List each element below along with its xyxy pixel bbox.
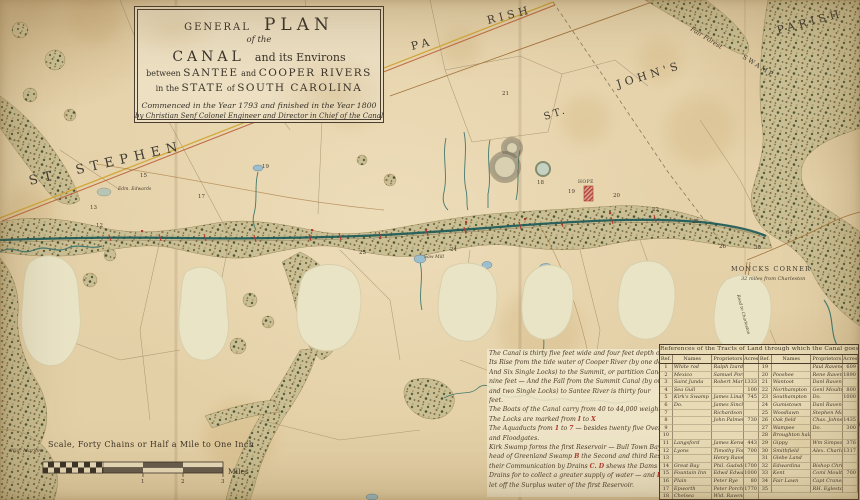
table-cell: 376	[843, 440, 858, 448]
col-ref: Ref.	[759, 355, 772, 363]
table-cell: 1435	[843, 417, 858, 425]
notes-line: The Locks are marked from I to X	[489, 415, 660, 424]
table-cell	[772, 486, 812, 494]
col-acres: Acres	[843, 355, 858, 363]
table-cell: 17	[660, 486, 673, 494]
table-cell: Henry Ravenel	[712, 455, 744, 463]
notes-text: to	[559, 425, 569, 432]
table-cell: 18	[660, 493, 673, 500]
table-cell: Pooshee	[772, 372, 812, 380]
table-cell: Richardson	[712, 410, 744, 418]
reference-table-right: 19Paul Ravenel60920PoosheeRene Ravenel18…	[759, 364, 858, 500]
notes-line: their Communication by Drains C. D shews…	[489, 462, 660, 471]
col-acres: Acres	[744, 355, 759, 363]
repair-patch	[522, 265, 574, 339]
tract-number: 24	[450, 247, 457, 253]
title-cartouche: GENERAL PLAN of the CANAL and its Enviro…	[134, 6, 384, 123]
table-cell: Rene Ravenel	[811, 372, 843, 380]
table-cell	[744, 402, 759, 410]
table-cell	[744, 364, 759, 372]
table-cell: 16	[660, 478, 673, 486]
table-cell: 1000	[843, 394, 858, 402]
table-cell: 1000	[744, 470, 759, 478]
scale-bar: Scale, Forty Chains or Half a Mile to On…	[43, 440, 254, 485]
swamp-bottom-blob	[404, 379, 454, 420]
tract-number: 30	[754, 245, 761, 251]
table-cell: 34	[759, 478, 772, 486]
table-cell: Robert Marion	[712, 379, 744, 387]
table-cell: Northampton	[772, 387, 812, 395]
tract-number: 34	[786, 230, 793, 236]
scale-caption: Scale, Forty Chains or Half a Mile to On…	[48, 440, 254, 449]
notes-text: Kirk Swamp forms the first Reservoir — B…	[489, 444, 660, 451]
notes-text: nine feet — And the Fall from the Summit…	[489, 378, 660, 385]
table-cell: 800	[843, 387, 858, 395]
stream	[443, 138, 448, 210]
notes-text: let off the Surplus water of the first R…	[489, 482, 634, 489]
label-saw-mill: Saw Mill	[424, 254, 445, 260]
table-cell: Fair Lawn	[772, 478, 812, 486]
table-cell: 8	[660, 417, 673, 425]
table-cell: Saint Junda	[673, 379, 713, 387]
table-cell: 19	[759, 364, 772, 372]
notes-text: head of Greenland Swamp	[489, 453, 574, 460]
col-names: Names	[673, 355, 713, 363]
table-cell: Oak field	[772, 417, 812, 425]
tract-number: 15	[140, 173, 147, 179]
table-cell: White rod	[673, 364, 713, 372]
table-cell: 5	[660, 394, 673, 402]
notes-line: Its Rise from the tide water of Cooper R…	[489, 358, 660, 367]
table-cell: 21	[759, 379, 772, 387]
table-cell	[811, 432, 843, 440]
table-cell: Fountain Inn	[673, 470, 713, 478]
notes-red-reference: C. D	[590, 463, 605, 470]
table-cell: 6	[660, 402, 673, 410]
table-cell: Samuel Porcher	[712, 372, 744, 380]
label-wid-marion: Wid. Marion	[10, 448, 41, 454]
table-cell: 1890	[843, 372, 858, 380]
tract-number: 19	[262, 164, 269, 170]
notes-text: their Communication by Drains	[489, 463, 590, 470]
table-cell: Glebe Land	[772, 455, 812, 463]
hope-building	[584, 186, 593, 201]
table-cell: 1700	[744, 463, 759, 471]
table-cell: Plain	[673, 478, 713, 486]
table-cell: Woodlawn	[772, 410, 812, 418]
table-cell	[744, 410, 759, 418]
repair-patch	[297, 265, 361, 351]
label-miles-from-charleston: 32 miles from Charleston	[741, 276, 805, 282]
reference-table-left: 1White rodRalph Izard Esq2MexicoSamuel P…	[660, 364, 759, 500]
table-cell: 443	[744, 440, 759, 448]
col-proprietors: Proprietors	[811, 355, 843, 363]
tract-number: 20	[613, 193, 620, 199]
canal-notes: The Canal is thirty five feet wide and f…	[487, 349, 660, 497]
table-cell: Wantoot	[772, 379, 812, 387]
table-cell: 29	[759, 440, 772, 448]
notes-text: The Canal is thirty five feet wide and f…	[489, 350, 660, 357]
table-cell: John Palmer	[712, 417, 744, 425]
lake-gray	[97, 188, 111, 196]
table-cell: 31	[759, 455, 772, 463]
notes-text: The Locks are marked from	[489, 416, 578, 423]
reference-table-body: 1White rodRalph Izard Esq2MexicoSamuel P…	[660, 364, 858, 500]
notes-text: and two Single Locks) to Santee River is…	[489, 388, 650, 395]
table-cell: Stephen Mazyck	[811, 410, 843, 418]
table-cell: 24	[759, 402, 772, 410]
table-cell: 13	[660, 455, 673, 463]
table-cell: Lyons	[673, 448, 713, 456]
tract-number: 26	[719, 244, 726, 250]
repair-patch	[618, 261, 675, 339]
col-ref: Ref.	[660, 355, 673, 363]
notes-line: and Floodgates.	[489, 434, 660, 443]
table-cell: RH. Egleston	[811, 486, 843, 494]
table-cell: 80	[744, 478, 759, 486]
tract-number: 22	[652, 207, 659, 213]
table-cell: Broughton hall	[772, 432, 812, 440]
table-cell: Timothy Ford	[712, 448, 744, 456]
repair-patch	[21, 256, 80, 366]
table-cell	[843, 410, 858, 418]
table-cell: Smithfield	[772, 448, 812, 456]
table-cell: Chelsea	[673, 493, 713, 500]
table-cell	[843, 486, 858, 494]
table-cell: Great Bay	[673, 463, 713, 471]
table-cell: Bishop Christie	[811, 463, 843, 471]
table-cell: 33	[759, 470, 772, 478]
table-cell	[843, 432, 858, 440]
table-cell: 11	[660, 440, 673, 448]
scale-tick-3: 3	[221, 479, 225, 485]
table-cell	[673, 425, 713, 433]
table-cell: Epworth	[673, 486, 713, 494]
notes-line: Kirk Swamp forms the first Reservoir — B…	[489, 443, 660, 452]
table-cell: 10	[660, 432, 673, 440]
reference-table-title: References of the Tracts of Land through…	[660, 345, 858, 355]
notes-text: shews the Dams and	[604, 463, 660, 470]
table-cell: Coml Moultrie	[811, 470, 843, 478]
notes-line: head of Greenland Swamp B the Second and…	[489, 452, 660, 461]
ring-pond	[536, 162, 550, 176]
table-cell	[712, 425, 744, 433]
stream	[464, 132, 468, 210]
notes-line: feet.	[489, 396, 660, 405]
table-cell: 22	[759, 387, 772, 395]
table-cell: Danl Ravenel	[811, 379, 843, 387]
notes-text: to	[581, 416, 591, 423]
scale-tick-1: 1	[141, 479, 145, 485]
table-cell: Kent	[772, 470, 812, 478]
map-canvas: Scale, Forty Chains or Half a Mile to On…	[0, 0, 860, 500]
cartouche-inner-border	[137, 9, 381, 120]
notes-text: feet.	[489, 397, 503, 404]
table-cell: 1333	[744, 379, 759, 387]
notes-text: Its Rise from the tide water of Cooper R…	[489, 359, 660, 366]
table-cell	[673, 417, 713, 425]
notes-line: The Boats of the Canal carry from 40 to …	[489, 405, 660, 414]
table-cell: 609	[843, 364, 858, 372]
table-cell: 15	[660, 470, 673, 478]
table-cell: 14	[660, 463, 673, 471]
swamp-central-band	[0, 206, 772, 259]
table-cell: 745	[744, 394, 759, 402]
table-cell: 1317	[843, 448, 858, 456]
table-cell: James Sinclair	[712, 402, 744, 410]
table-cell: Peter Rye	[712, 478, 744, 486]
table-cell: Wampee	[772, 425, 812, 433]
table-cell: Chas. Johnston	[811, 417, 843, 425]
table-cell	[712, 432, 744, 440]
table-cell	[744, 455, 759, 463]
table-cell: 700	[843, 470, 858, 478]
notes-line: The Aquaducts from 1 to 7 — besides twen…	[489, 424, 660, 433]
notes-text: The Aquaducts from	[489, 425, 555, 432]
tract-number: 23	[359, 250, 366, 256]
table-cell: Do.	[673, 402, 713, 410]
table-cell: 12	[660, 448, 673, 456]
table-cell	[811, 455, 843, 463]
table-cell: 700	[744, 448, 759, 456]
table-cell: James Linah	[712, 394, 744, 402]
scale-tick-2: 2	[181, 479, 185, 485]
col-proprietors: Proprietors	[712, 355, 744, 363]
table-cell: Danl Ravenel	[811, 402, 843, 410]
stream	[488, 140, 490, 208]
table-cell: 27	[759, 425, 772, 433]
table-cell: 28	[759, 432, 772, 440]
reference-table: References of the Tracts of Land through…	[659, 344, 859, 500]
table-cell: Do.	[811, 425, 843, 433]
tract-number: 12	[96, 223, 103, 229]
table-cell: Edwd Edwards	[712, 470, 744, 478]
table-cell: Sea Gull	[673, 387, 713, 395]
tract-number: 17	[198, 194, 205, 200]
table-cell	[673, 432, 713, 440]
table-cell: Southampton	[772, 394, 812, 402]
table-cell: 2	[660, 372, 673, 380]
table-cell	[772, 364, 812, 372]
table-cell: 4	[660, 387, 673, 395]
table-cell	[744, 372, 759, 380]
table-cell: Do.	[811, 394, 843, 402]
table-cell	[673, 455, 713, 463]
table-cell: Langsford	[673, 440, 713, 448]
notes-text: the Second and third Reservoir	[579, 453, 660, 460]
reference-table-header-right: Ref. Names Proprietors Acres	[759, 355, 858, 363]
table-cell: Wm Simpson	[811, 440, 843, 448]
tract-number: 18	[537, 180, 544, 186]
table-cell	[843, 478, 858, 486]
notes-line: Drains for to collect a greater supply o…	[489, 471, 660, 480]
table-cell: 26	[759, 417, 772, 425]
table-cell: 7	[660, 410, 673, 418]
table-cell: 32	[759, 463, 772, 471]
repair-patch	[179, 267, 229, 360]
table-cell	[744, 432, 759, 440]
label-hope: HOPE	[578, 179, 594, 185]
tract-number: 13	[90, 205, 97, 211]
table-cell	[673, 410, 713, 418]
table-cell: Wid. Ravenel	[712, 493, 744, 500]
table-cell: James Kenworth	[712, 440, 744, 448]
notes-text: Drains for to collect a greater supply o…	[489, 472, 657, 479]
col-names: Names	[772, 355, 812, 363]
table-cell: Capt Cranes	[811, 478, 843, 486]
table-cell: Paul Ravenel	[811, 364, 843, 372]
notes-line: nine feet — And the Fall from the Summit…	[489, 377, 660, 386]
reference-table-header: Ref. Names Proprietors Acres Ref. Names …	[660, 355, 858, 364]
table-cell: 9	[660, 425, 673, 433]
label-edm-edwards: Edm. Edwards	[117, 186, 152, 192]
table-cell: Kirk's Swamp	[673, 394, 713, 402]
notes-line: And Six Single Locks) to the Summit, or …	[489, 368, 660, 377]
table-cell: 100	[744, 387, 759, 395]
notes-line: let off the Surplus water of the first R…	[489, 481, 660, 490]
table-cell: Edwardina	[772, 463, 812, 471]
table-cell: Gumistown	[772, 402, 812, 410]
tract-number: 19	[568, 189, 575, 195]
table-cell: Peter Porcher	[712, 486, 744, 494]
tract-number: 25	[692, 219, 699, 225]
table-cell: 300	[843, 425, 858, 433]
table-cell: 3	[660, 379, 673, 387]
table-cell: Alex. Charlot	[811, 448, 843, 456]
notes-line: and two Single Locks) to Santee River is…	[489, 387, 660, 396]
table-cell: Ralph Izard Esq	[712, 364, 744, 372]
table-cell: 1	[660, 364, 673, 372]
stream	[420, 262, 422, 310]
table-cell: 35	[759, 486, 772, 494]
notes-text: And Six Single Locks) to the Summit, or …	[489, 369, 660, 376]
reference-table-header-left: Ref. Names Proprietors Acres	[660, 355, 759, 363]
table-cell: 23	[759, 394, 772, 402]
table-cell	[843, 455, 858, 463]
notes-red-reference: X	[591, 416, 596, 423]
table-cell: Phil. Gadsden	[712, 463, 744, 471]
scale-miles-label: Miles	[228, 467, 249, 476]
table-cell	[744, 493, 759, 500]
notes-line: The Canal is thirty five feet wide and f…	[489, 349, 660, 358]
table-cell: 20	[759, 372, 772, 380]
table-cell: Gippy	[772, 440, 812, 448]
table-cell: 25	[759, 410, 772, 418]
table-cell	[744, 425, 759, 433]
notes-text: and Floodgates.	[489, 435, 539, 442]
table-cell: 730	[744, 417, 759, 425]
table-cell: 30	[759, 448, 772, 456]
table-cell: 1770	[744, 486, 759, 494]
repair-patch	[438, 263, 497, 341]
tract-number: 21	[502, 91, 509, 97]
table-cell	[712, 387, 744, 395]
table-cell: Genl Moultrie	[811, 387, 843, 395]
label-moncks-corner: MONCKS CORNER	[731, 265, 811, 273]
notes-text: — besides twenty five Overfalls	[573, 425, 660, 432]
notes-text: The Boats of the Canal carry from 40 to …	[489, 406, 660, 413]
table-cell	[843, 463, 858, 471]
table-cell	[843, 402, 858, 410]
table-cell: Mexico	[673, 372, 713, 380]
table-cell	[843, 379, 858, 387]
